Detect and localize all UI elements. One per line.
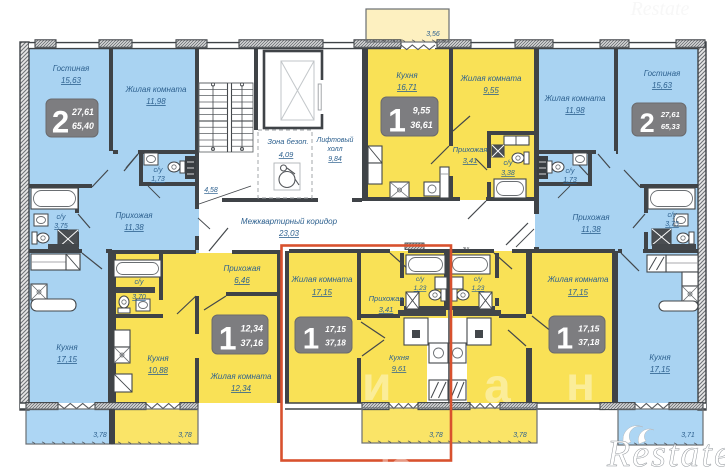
svg-text:3,70: 3,70	[132, 294, 146, 301]
svg-text:65,33: 65,33	[661, 122, 681, 131]
svg-text:3,75: 3,75	[54, 223, 68, 230]
svg-text:37,16: 37,16	[241, 338, 264, 348]
svg-text:3,75: 3,75	[665, 221, 679, 228]
svg-text:3,78: 3,78	[93, 432, 107, 439]
svg-text:холл: холл	[326, 146, 342, 153]
svg-text:с/у: с/у	[566, 168, 575, 175]
svg-text:9,61: 9,61	[392, 364, 407, 373]
svg-text:Прихожая: Прихожая	[115, 211, 153, 220]
svg-text:Жилая комната: Жилая комната	[460, 74, 522, 83]
svg-text:23,03: 23,03	[278, 229, 300, 238]
svg-text:1: 1	[303, 323, 319, 356]
svg-text:1,73: 1,73	[151, 176, 165, 183]
svg-text:Кухня: Кухня	[389, 353, 409, 362]
svg-text:Гостиная: Гостиная	[644, 69, 681, 78]
svg-text:37,18: 37,18	[325, 338, 346, 347]
svg-text:10,88: 10,88	[148, 366, 169, 375]
svg-text:17,15: 17,15	[578, 324, 600, 334]
svg-text:Кухня: Кухня	[396, 71, 418, 80]
svg-text:ю: ю	[380, 446, 412, 468]
svg-text:Жилая комната: Жилая комната	[125, 85, 187, 94]
svg-text:с/у: с/у	[504, 160, 513, 167]
svg-text:Прихожая: Прихожая	[223, 264, 261, 273]
svg-text:и: и	[362, 358, 392, 411]
svg-text:27,61: 27,61	[660, 110, 680, 119]
svg-text:01: 01	[585, 404, 614, 434]
svg-text:17,15: 17,15	[325, 325, 346, 334]
svg-text:Прихожая: Прихожая	[572, 213, 610, 222]
svg-text:1: 1	[556, 323, 573, 356]
svg-text:36,61: 36,61	[410, 120, 432, 130]
svg-text:эш: эш	[463, 246, 470, 252]
svg-text:Restate: Restate	[630, 0, 690, 20]
svg-text:11,98: 11,98	[146, 97, 166, 106]
svg-text:3,38: 3,38	[501, 170, 515, 177]
svg-text:15,63: 15,63	[652, 81, 673, 90]
svg-text:1,23: 1,23	[414, 285, 427, 292]
svg-text:11,98: 11,98	[565, 106, 585, 115]
svg-text:Лифтовый: Лифтовый	[316, 136, 354, 144]
svg-text:с/у: с/у	[57, 214, 66, 221]
svg-text:с/у: с/у	[668, 212, 677, 219]
svg-text:3,41: 3,41	[379, 305, 394, 314]
svg-text:15,63: 15,63	[61, 76, 82, 85]
svg-text:Кухня: Кухня	[56, 343, 78, 352]
svg-text:3,56: 3,56	[426, 31, 440, 38]
svg-text:17,15: 17,15	[312, 288, 333, 297]
svg-text:4,09: 4,09	[279, 150, 294, 159]
svg-text:12,34: 12,34	[241, 323, 263, 333]
svg-text:17,15: 17,15	[57, 355, 78, 364]
svg-text:9,84: 9,84	[328, 156, 342, 163]
svg-text:11,38: 11,38	[581, 225, 601, 234]
svg-text:1: 1	[219, 320, 237, 356]
svg-text:Прихожая: Прихожая	[453, 145, 488, 154]
svg-text:Жилая комната: Жилая комната	[291, 275, 353, 284]
svg-text:4,58: 4,58	[204, 187, 218, 194]
svg-text:Restate: Restate	[606, 433, 725, 468]
svg-text:с/у: с/у	[154, 167, 163, 174]
svg-text:Межквартирный коридор: Межквартирный коридор	[241, 217, 338, 226]
svg-text:16,71: 16,71	[397, 83, 417, 92]
svg-text:Жилая комната: Жилая комната	[544, 94, 606, 103]
svg-text:Зона безоп.: Зона безоп.	[267, 137, 308, 146]
svg-text:2: 2	[640, 108, 655, 138]
svg-text:12,34: 12,34	[231, 384, 252, 393]
svg-text:3,78: 3,78	[178, 432, 192, 439]
svg-text:17,15: 17,15	[568, 288, 589, 297]
svg-text:1: 1	[388, 102, 406, 138]
svg-text:а: а	[484, 360, 511, 413]
svg-text:с/у: с/у	[135, 279, 144, 286]
svg-text:27,61: 27,61	[71, 107, 94, 117]
svg-text:Прихожая: Прихожая	[369, 294, 404, 303]
svg-text:3,78: 3,78	[513, 432, 527, 439]
svg-text:Кухня: Кухня	[649, 353, 671, 362]
svg-text:Жилая комната: Жилая комната	[547, 275, 609, 284]
svg-text:3,78: 3,78	[429, 432, 443, 439]
svg-text:с/у: с/у	[474, 276, 483, 283]
svg-text:с/у: с/у	[416, 276, 425, 283]
svg-text:1,23: 1,23	[472, 285, 485, 292]
svg-text:Кухня: Кухня	[147, 354, 169, 363]
svg-text:6,46: 6,46	[234, 276, 250, 285]
svg-text:3,41: 3,41	[463, 156, 478, 165]
svg-text:1,73: 1,73	[563, 177, 577, 184]
svg-text:65,40: 65,40	[72, 121, 94, 131]
svg-text:9,55: 9,55	[413, 105, 431, 115]
svg-text:37,18: 37,18	[578, 337, 600, 347]
svg-text:9,55: 9,55	[483, 86, 499, 95]
svg-text:11,38: 11,38	[124, 223, 144, 232]
svg-text:2: 2	[52, 104, 69, 139]
svg-text:17,15: 17,15	[650, 365, 671, 374]
svg-text:Жилая комната: Жилая комната	[210, 372, 272, 381]
svg-text:Гостиная: Гостиная	[53, 64, 90, 73]
